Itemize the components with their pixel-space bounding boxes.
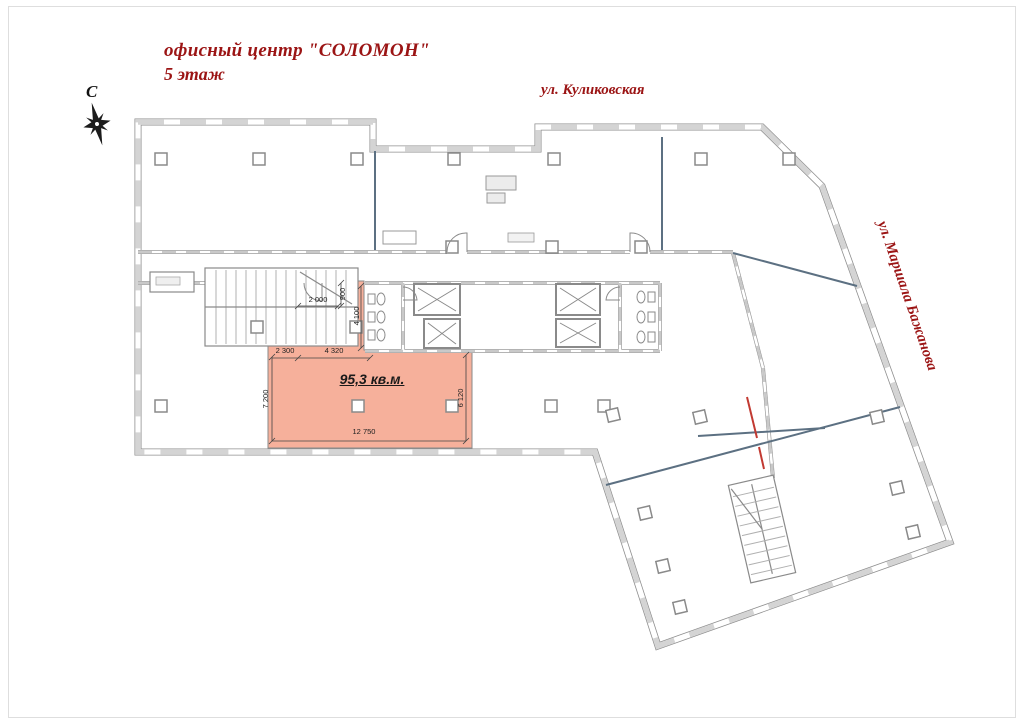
dim-closet-height: 4 100 (352, 298, 362, 334)
floor-plan-page: офисный центр "СОЛОМОН" 5 этаж ул. Кулик… (0, 0, 1024, 724)
dim-right-height: 6 120 (456, 380, 466, 416)
floor-subtitle: 5 этаж (164, 64, 225, 85)
wc-fixtures (368, 291, 655, 343)
dim-left-height: 7 200 (261, 381, 271, 417)
unit-area-label: 95,3 кв.м. (312, 371, 432, 387)
service-boxes (383, 176, 534, 244)
dim-top-width: 2 000 (296, 295, 340, 305)
dim-mid-segment: 4 320 (314, 346, 354, 356)
dim-left-segment: 2 300 (265, 346, 305, 356)
floor-plan-drawing (0, 0, 1024, 724)
compass-star-icon (78, 99, 116, 148)
page-title: офисный центр "СОЛОМОН" (164, 40, 430, 62)
left-staircase (150, 268, 358, 346)
elevator-shafts (414, 284, 600, 348)
compass-north-label: С (86, 82, 97, 102)
wing-staircase (728, 475, 795, 583)
dim-stub-height: 900 (338, 282, 348, 306)
dim-bottom-width: 12 750 (334, 427, 394, 437)
street-label-kulikovskaya: ул. Куликовская (541, 82, 644, 99)
building-outline (138, 122, 950, 646)
